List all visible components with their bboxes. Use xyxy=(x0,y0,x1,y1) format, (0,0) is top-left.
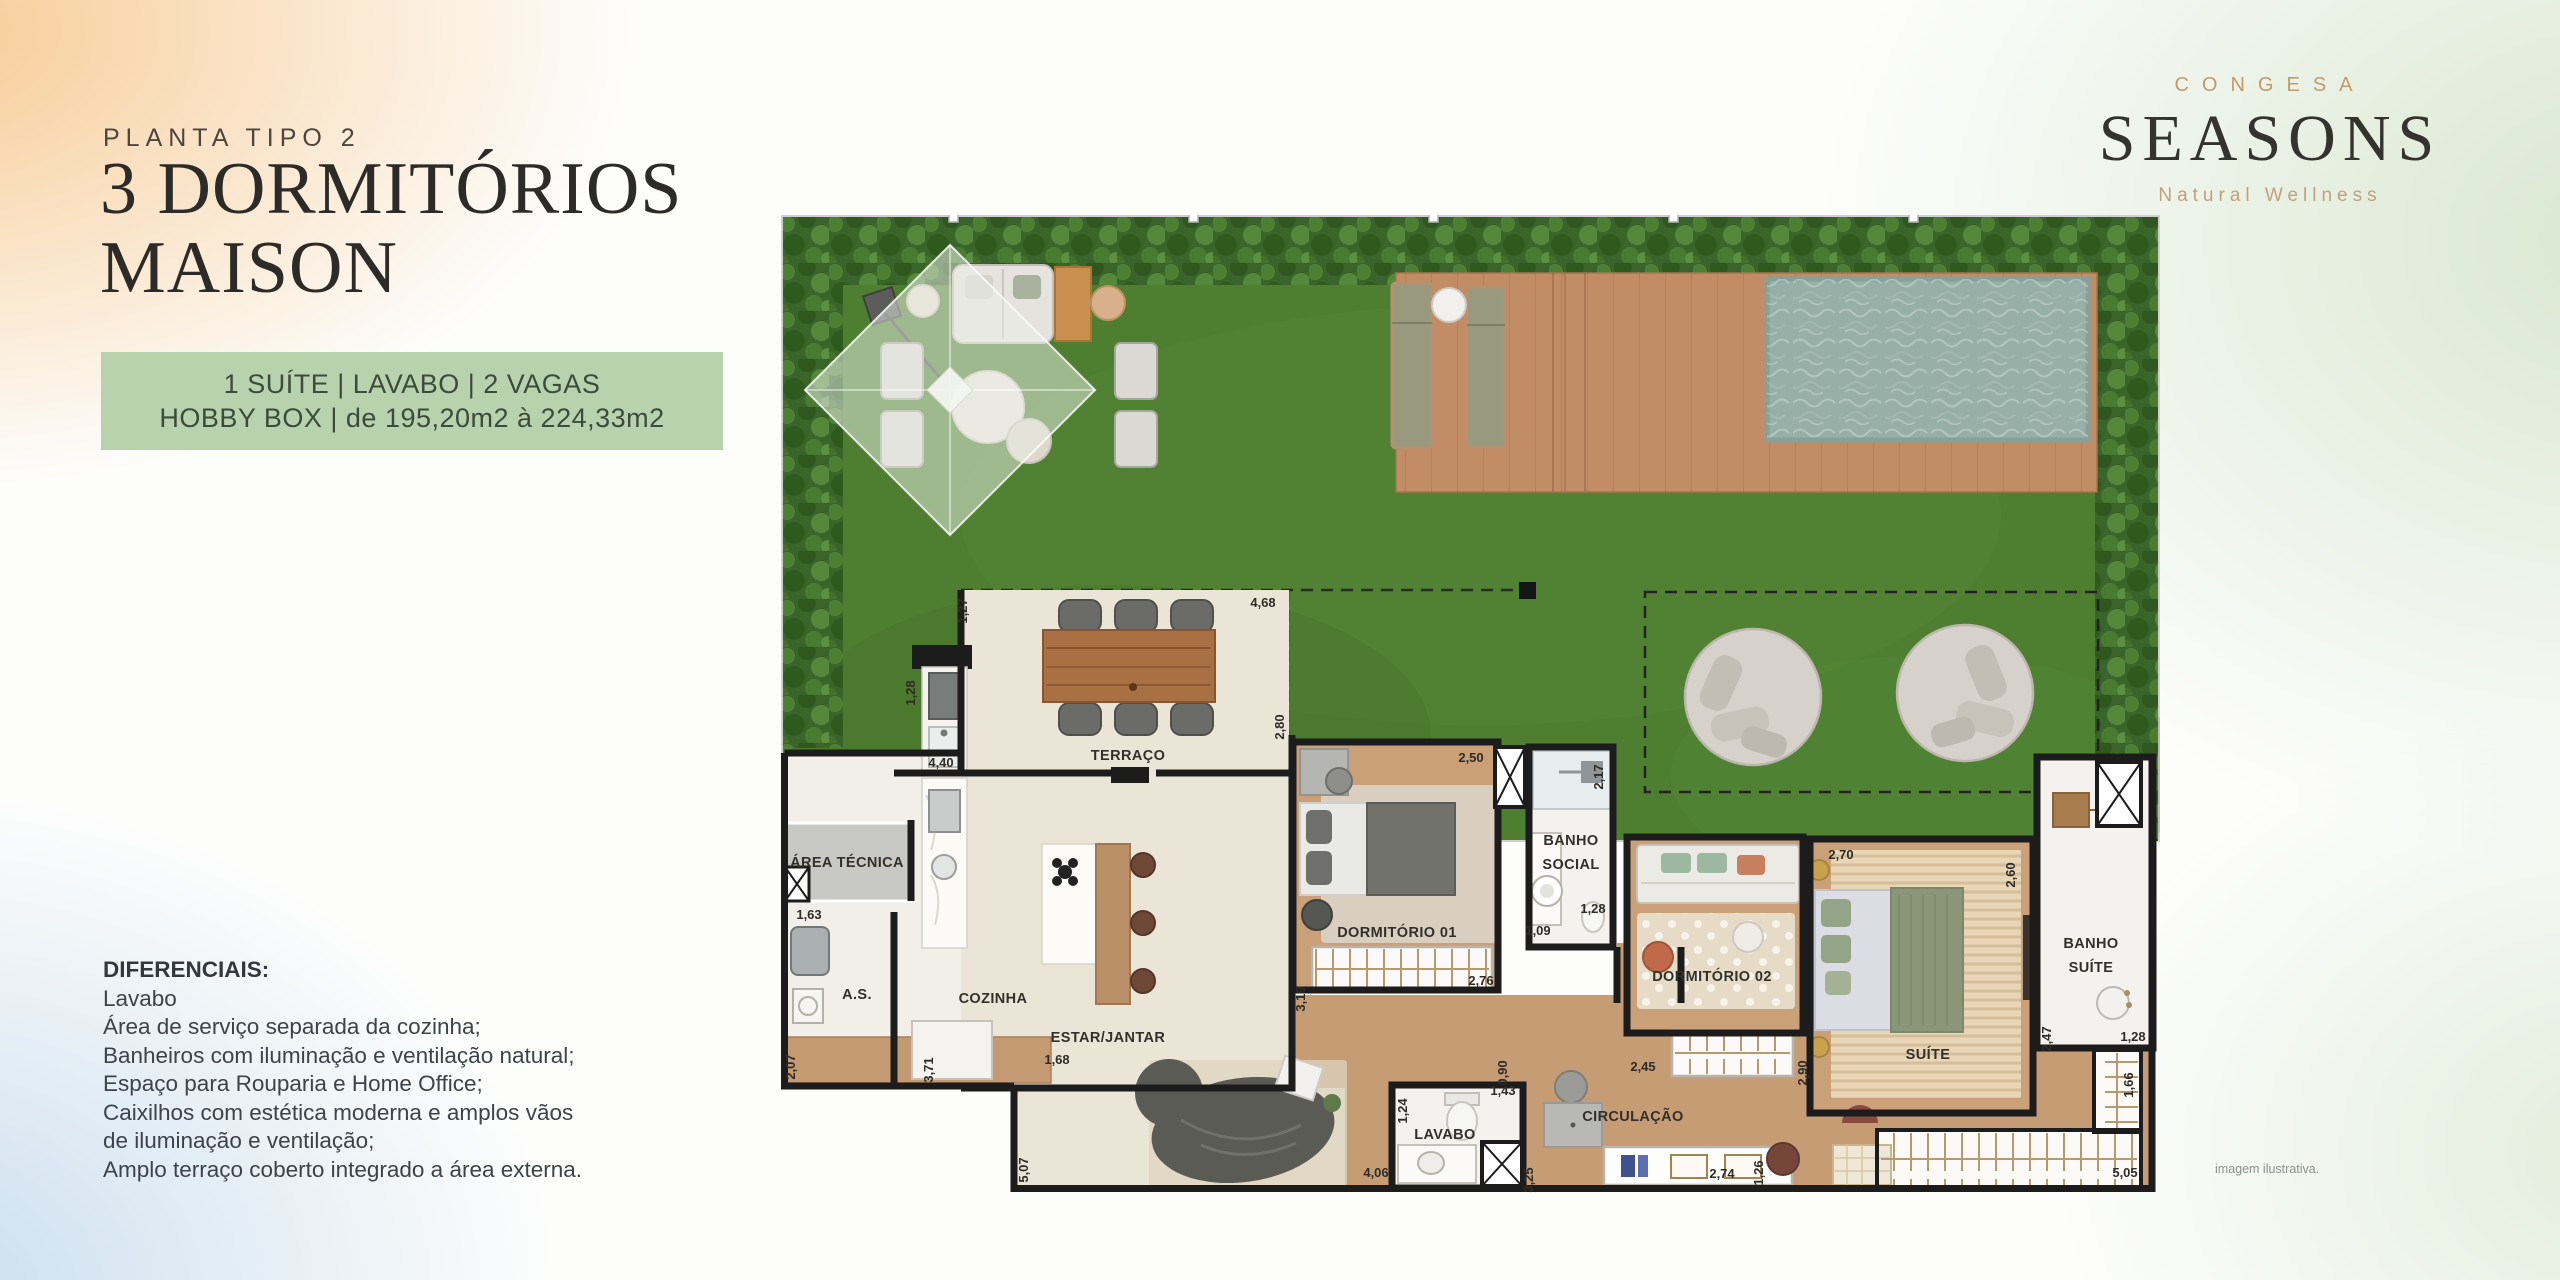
differentials-list: DIFERENCIAIS: Lavabo Área de serviço sep… xyxy=(103,956,583,1184)
sink xyxy=(2097,987,2129,1019)
hedge-left xyxy=(783,217,843,748)
dim-rouparia-right: 1,66 xyxy=(2121,1072,2136,1097)
dim-suite-right: 2,60 xyxy=(2003,862,2018,887)
blanket xyxy=(1367,803,1455,895)
round-daybed xyxy=(1685,629,1821,765)
kitchen-sink xyxy=(929,790,960,832)
room-label-dorm2: DORMITÓRIO 02 xyxy=(1652,967,1772,985)
dim-banho-suite-left: 2,47 xyxy=(2039,1026,2054,1051)
dim-terraco-top: 4,68 xyxy=(1250,595,1275,610)
room-label-suite: SUÍTE xyxy=(1906,1046,1951,1063)
differential-item: Espaço para Rouparia e Home Office; xyxy=(103,1070,583,1099)
dim-circ-left: 3,25 xyxy=(1521,1167,1536,1192)
differential-item: Área de serviço separada da cozinha; xyxy=(103,1013,583,1042)
hedge-right xyxy=(2095,219,2158,841)
dim-banho-social-w: 1,28 xyxy=(1580,901,1605,916)
dim-banho-social-right: 2,17 xyxy=(1591,764,1606,789)
room-label-terraco: TERRAÇO xyxy=(1091,748,1166,764)
basket xyxy=(1671,1155,1707,1178)
dim-lavabo-shaft: 0,90 xyxy=(1495,1060,1510,1085)
page-title-line1: 3 DORMITÓRIOS xyxy=(100,150,682,229)
outdoor-coffee-table xyxy=(1055,267,1091,341)
dim-as-left: 2,07 xyxy=(783,1054,798,1079)
dim-estar-left: 5,07 xyxy=(1016,1157,1031,1182)
door-panel xyxy=(1111,767,1149,783)
office-chair xyxy=(1555,1071,1587,1103)
room-label-dorm1: DORMITÓRIO 01 xyxy=(1337,923,1457,941)
round-table xyxy=(1091,286,1125,320)
room-label-cozinha: COZINHA xyxy=(959,991,1028,1007)
room-label-circulacao: CIRCULAÇÃO xyxy=(1582,1107,1683,1125)
laundry-sink xyxy=(791,927,829,975)
desk-chair xyxy=(1326,768,1352,794)
dim-banho-suite-bottom: 1,28 xyxy=(2120,1029,2145,1044)
vanity xyxy=(2053,793,2089,827)
deck-side-table xyxy=(1432,288,1466,322)
badge-line2: HOBBY BOX | de 195,20m2 à 224,33m2 xyxy=(159,403,664,434)
dim-banho-social-door: 1,09 xyxy=(1525,923,1550,938)
dim-dorm2-closet: 2,90 xyxy=(1795,1060,1810,1085)
dim-lavabo-left: 1,24 xyxy=(1395,1098,1410,1124)
room-label-lavabo: LAVABO xyxy=(1414,1127,1475,1143)
room-label-as: A.S. xyxy=(842,987,872,1003)
differential-item: Caixilhos com estética moderna e amplos … xyxy=(103,1099,583,1156)
differentials-title: DIFERENCIAIS: xyxy=(103,956,583,985)
plant xyxy=(1323,1094,1341,1112)
dim-estar-bottom: 4,06 xyxy=(1363,1165,1388,1180)
room-label-banho-social-2: SOCIAL xyxy=(1542,857,1599,873)
living-furniture xyxy=(1135,1056,1347,1195)
room-label-banho-suite-1: BANHO xyxy=(2063,936,2118,952)
room-label-banho-social-1: BANHO xyxy=(1543,833,1598,849)
room-label-area-tecnica: ÁREA TÉCNICA xyxy=(790,854,904,871)
round-table xyxy=(1733,922,1763,952)
logo-brand: CONGESA xyxy=(2060,74,2480,97)
books xyxy=(1621,1155,1635,1177)
dim-dorm2-bottom: 2,45 xyxy=(1630,1059,1655,1074)
floor-plan: TERRAÇO ÁREA TÉCNICA A.S. COZINHA ESTAR/… xyxy=(781,215,2160,1195)
unit-specs-badge: 1 SUÍTE | LAVABO | 2 VAGAS HOBBY BOX | d… xyxy=(101,352,723,450)
brand-logo: CONGESA SEASONS Natural Wellness xyxy=(2060,74,2480,207)
room-label-estar: ESTAR/JANTAR xyxy=(1051,1030,1166,1046)
dim-terraco-w: 4,40 xyxy=(928,755,953,770)
logo-name: SEASONS xyxy=(2060,101,2480,177)
side-table xyxy=(1302,900,1332,930)
bed-throw xyxy=(1891,888,1963,1032)
sink xyxy=(1418,1152,1444,1174)
dim-dorm1-bottom: 2,76 xyxy=(1468,973,1493,988)
grill xyxy=(929,673,960,719)
boundary-marker xyxy=(1519,582,1536,599)
dim-circ-right: 1,26 xyxy=(1751,1160,1766,1185)
dim-terraco-left: 1,27 xyxy=(955,598,970,623)
image-disclaimer: imagem ilustrativa. xyxy=(2215,1162,2319,1176)
differential-item: Banheiros com iluminação e ventilação na… xyxy=(103,1042,583,1071)
dim-circ-shelf: 2,74 xyxy=(1709,1166,1735,1181)
dim-suite-top: 2,70 xyxy=(1828,847,1853,862)
dim-cozinha-bottom: 1,68 xyxy=(1044,1052,1069,1067)
dim-lavabo-top: 1,43 xyxy=(1490,1083,1515,1098)
dim-dorm1-left: 3,19 xyxy=(1293,986,1308,1011)
dim-rouparia-bottom: 5,05 xyxy=(2112,1165,2137,1180)
dim-cozinha-v: 3,71 xyxy=(921,1057,936,1082)
pouf xyxy=(1767,1143,1799,1175)
sun-lounger xyxy=(1392,283,1432,448)
page-title: 3 DORMITÓRIOS MAISON xyxy=(100,150,682,308)
dim-grill-counter: 1,28 xyxy=(903,680,918,705)
page-title-line2: MAISON xyxy=(100,229,682,308)
dim-terraco-right: 2,80 xyxy=(1272,714,1287,739)
page: PLANTA TIPO 2 3 DORMITÓRIOS MAISON 1 SUÍ… xyxy=(0,0,2560,1280)
logo-tagline: Natural Wellness xyxy=(2060,185,2480,207)
differential-item: Amplo terraço coberto integrado a área e… xyxy=(103,1156,583,1185)
badge-line1: 1 SUÍTE | LAVABO | 2 VAGAS xyxy=(224,369,601,400)
sun-lounger xyxy=(1467,287,1505,447)
room-label-banho-suite-2: SUÍTE xyxy=(2069,959,2114,976)
pouf xyxy=(1643,942,1673,972)
bedroom1-furniture xyxy=(1300,749,1501,991)
dim-dorm1-top: 2,50 xyxy=(1458,750,1483,765)
bar-stools xyxy=(1131,853,1155,993)
differential-item: Lavabo xyxy=(103,985,583,1014)
washer xyxy=(793,989,823,1023)
round-daybed xyxy=(1897,625,2033,761)
island-table xyxy=(1096,844,1130,1004)
dim-as-top: 1,63 xyxy=(796,907,821,922)
